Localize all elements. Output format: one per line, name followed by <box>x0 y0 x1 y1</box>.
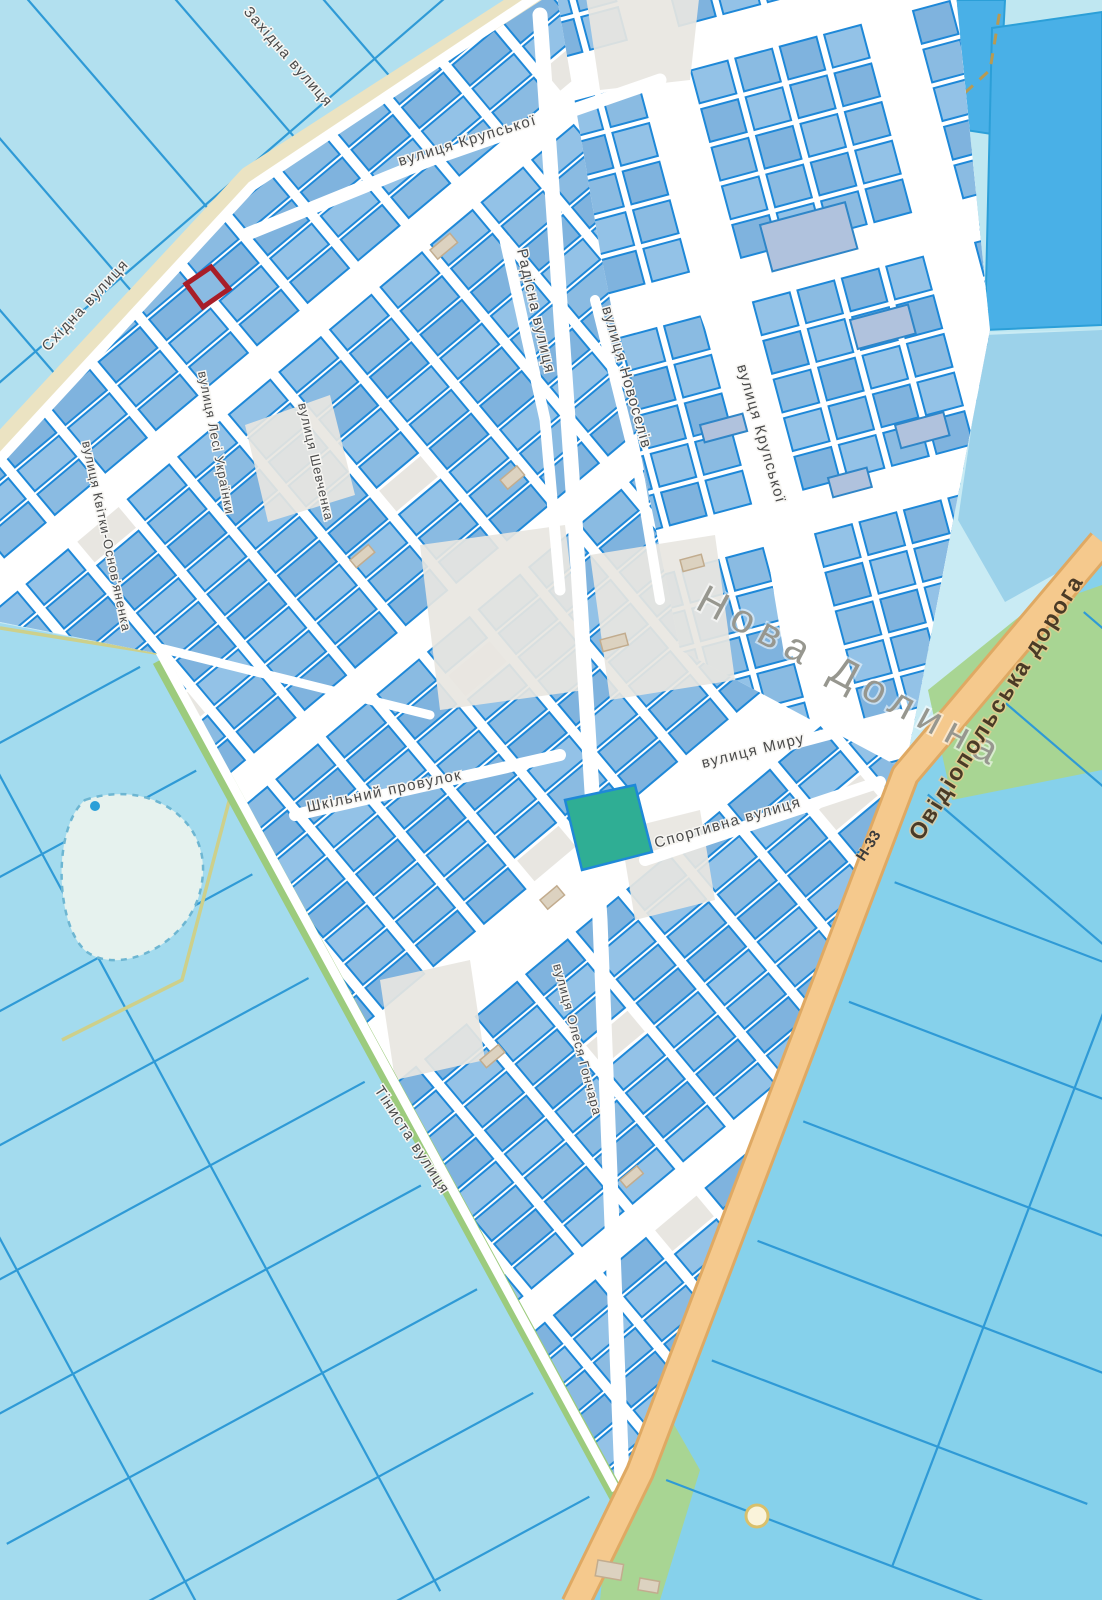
poi-marker[interactable] <box>746 1505 768 1527</box>
building <box>638 1578 660 1593</box>
building <box>595 1560 623 1580</box>
map-canvas[interactable]: Східна вулиця Західна вулиця вулиця Круп… <box>0 0 1102 1600</box>
